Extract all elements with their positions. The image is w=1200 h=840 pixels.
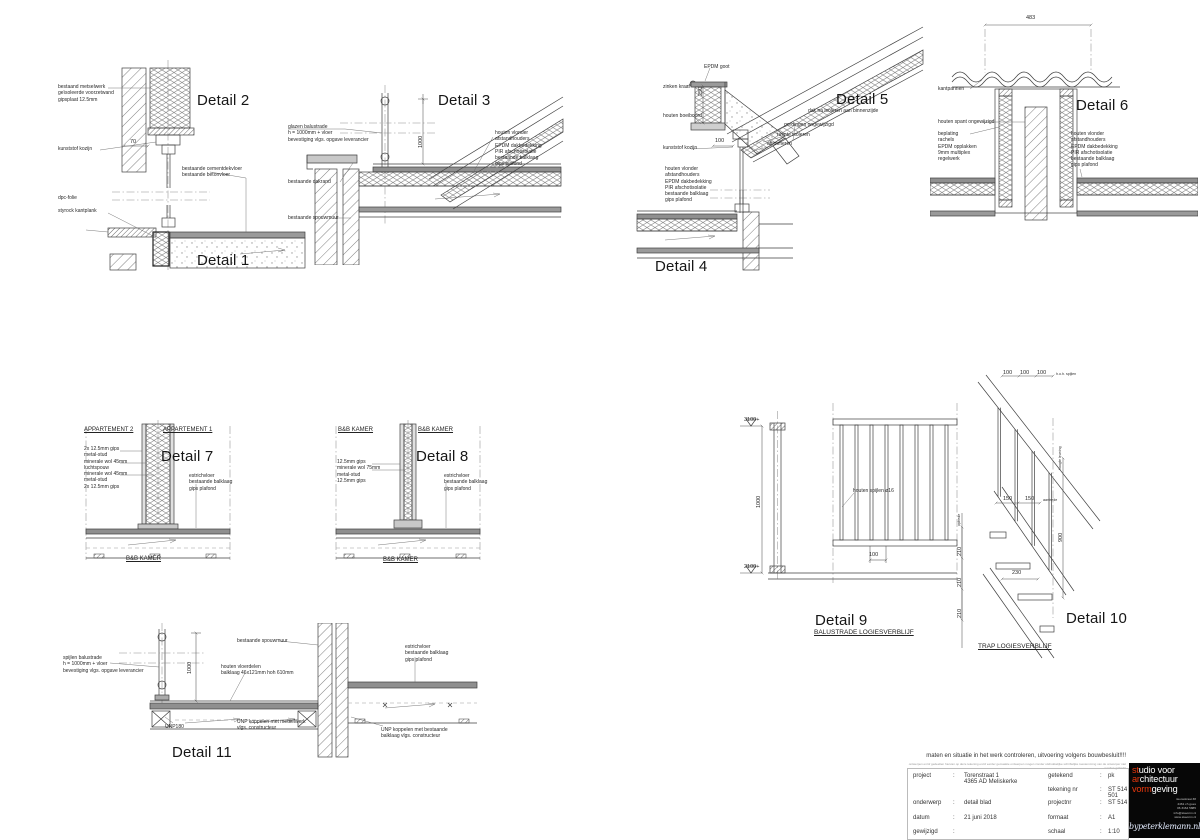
detail-4-title: Detail 4 [655,258,707,275]
field-separator: : [953,815,955,821]
field-value-tekening-nr: ST 514 501 [1108,787,1128,799]
dimension-1000: 1000 [187,662,193,674]
field-label: tekening nr [1048,787,1078,793]
dimension-483: 483 [1026,15,1035,21]
field-value-schaal: 1:10 [1108,829,1120,835]
detail-4-annotation: houten vlonder afstandhouders EPDM dakbe… [665,166,712,204]
detail-3-title: Detail 3 [438,92,490,109]
dimension-150: 150 [1025,496,1034,502]
field-value-getekend: pk [1108,773,1114,779]
detail-2-annotation: bestaand metselwerk geïsoleerde voorzetw… [58,84,114,103]
logo-address: nieuwstraat 38 4461 ch goes 06 3164 5885… [1129,797,1200,819]
dimension-210: 210 [957,578,963,587]
field-label: datum [913,815,930,821]
detail-6-annotation: kantpannen [938,86,964,92]
detail-5-annotation: aftimmeren [767,141,792,147]
detail-3-annotation: bestaande dakrand [288,179,331,185]
detail-7-title: Detail 7 [161,448,213,465]
detail-3-annotation: glazen balustrade h = 1000mm + vloer bev… [288,124,369,143]
field-label: project [913,773,931,779]
detail-7-room-header: APPARTEMENT 2 [84,427,133,433]
field-separator: : [1100,773,1102,779]
dimension-250: 250 [698,87,704,96]
detail-9-drawing [738,393,966,638]
detail-10-title: Detail 10 [1066,610,1127,627]
dimension-230: 230 [1012,570,1021,576]
dimension-1000: 1000 [418,136,424,148]
detail-11-annotation: houten vloerdelen balklaag 46x121mm hoh … [221,664,294,677]
field-label: formaat [1048,815,1068,821]
detail-5-annotation: ruimte isoleren [777,132,810,138]
detail-8-drawing [328,418,492,568]
detail-7-annotation: estrichvloer bestaande balklaag gips pla… [189,473,232,492]
field-separator: : [1100,829,1102,835]
field-separator: : [1100,800,1102,806]
dimension-100: 100 [1020,370,1029,376]
detail-8-annotation: 12.5mm gips minerale wol 75mm metal-stud… [337,459,380,484]
detail-8-room-footer: B&B KAMER [383,557,418,563]
field-separator: : [1100,815,1102,821]
detail-6-annotation: houten vlonder afstandhouders EPDM dakbe… [1071,131,1118,169]
dimension-210: 210 [957,547,963,556]
detail-2-title: Detail 2 [197,92,249,109]
studio-logo: studio voor architectuur vormgeving nieu… [1129,763,1200,838]
detail-1-annotation: dpc-folie [58,195,77,201]
detail-11-annotation: spijlen balustrade h = 1000mm + vloer be… [63,655,144,674]
detail-6-title: Detail 6 [1076,97,1128,114]
field-separator: : [953,773,955,779]
detail-6-annotation: beplating rachels EPDM opplakken 9mm mul… [938,131,977,162]
detail-5-annotation: houten boeiboord [663,113,702,119]
level-3100: 3100+ [744,417,759,423]
field-separator: : [953,829,955,835]
detail-11-annotation: UNP koppelen met metselwerk vlgs. constr… [237,719,306,732]
detail-8-room-header: B&B KAMER [338,427,373,433]
field-label: onderwerp [913,800,941,806]
dim-label-aantrede: aantrede [1043,498,1057,502]
dimension-100: 100 [1003,370,1012,376]
title-block: maten en situatie in het werk controlere… [905,750,1200,840]
detail-7-annotation: 2x 12.5mm gips metal-stud minerale wol 4… [84,446,127,490]
dim-label-hoh-spijlen: h.o.h. spijlen [1056,372,1076,376]
dimension-150: 150 [1003,496,1012,502]
detail-11-title: Detail 11 [172,744,232,761]
detail-11-annotation: bestaande spouwmuur [237,638,288,644]
detail-7-room-header: APPARTEMENT 1 [163,427,212,433]
logo-website: bypeterklemann.nl [1129,822,1200,831]
field-label: schaal [1048,829,1065,835]
field-separator: : [1100,787,1102,793]
detail-3-drawing [285,85,565,265]
detail-3-annotation: houten vlonder afstandhouders EPDM dakbe… [495,130,542,168]
detail-5-annotation: gordingen ongewijzigd [784,122,834,128]
field-value-projectnr: ST 514 [1108,800,1127,806]
dim-label-hoogte-leuning: hoogte leuning [1058,446,1062,470]
detail-2-annotation: kunststof kozijn [58,146,92,152]
field-label: getekend [1048,773,1073,779]
detail-5-title: Detail 5 [836,91,888,108]
detail-6-annotation: houten spant ongewijzigd [938,119,994,125]
detail-5-annotation: zinken kraal [663,84,690,90]
detail-11-annotation: UNP koppelen met bestaande balklaag vlgs… [381,727,448,740]
field-separator: : [953,800,955,806]
detail-5-annotation: dak na isoleren aan binnenzijde [808,108,878,114]
level-2100: 2100+ [744,564,759,570]
dimension-1000: 1000 [756,496,762,508]
dimension-100: 100 [869,552,878,558]
field-value-datum: 21 juni 2018 [964,815,997,821]
field-label: gewijzigd [913,829,938,835]
detail-11-annotation: UNP180 [165,724,184,730]
detail-1-annotation: styrock kantplank [58,208,97,214]
dimension-100: 100 [1037,370,1046,376]
detail-5-annotation: kunststof kozijn [663,145,697,151]
detail-8-annotation: estrichvloer bestaande balklaag gips pla… [444,473,487,492]
dim-label-optrede: optrede [957,514,961,526]
dimension-900: 900 [1058,533,1064,542]
detail-5-annotation: EPDM goot [704,64,730,70]
field-value-onderwerp: detail blad [964,800,991,806]
detail-1-title: Detail 1 [197,252,249,269]
title-block-table: project : Torenstraat 1 4365 AD Melisker… [907,768,1129,840]
logo-line: vormgeving [1129,785,1200,794]
detail-1-annotation: bestaande cementdekvloer bestaande beton… [182,166,242,179]
dimension-70: 70 [130,139,136,145]
field-label: projectnr [1048,800,1071,806]
detail-10-subtitle: TRAP LOGIESVERBLIJF [978,643,1052,650]
detail-9-annotation: houten spijlen ø16 [853,488,894,494]
detail-9-subtitle: BALUSTRADE LOGIESVERBLIJF [814,629,914,636]
dimension-210: 210 [957,609,963,618]
detail-7-room-footer: B&B KAMER [126,556,161,562]
field-value-formaat: A1 [1108,815,1115,821]
detail-7-drawing [78,418,242,568]
field-value-project: Torenstraat 1 4365 AD Meliskerke [964,773,1017,785]
detail-9-title: Detail 9 [815,612,867,629]
detail-11-annotation: estrichvloer bestaande balklaag gips pla… [405,644,448,663]
detail-8-room-header: B&B KAMER [418,427,453,433]
construction-note: maten en situatie in het werk controlere… [905,753,1126,759]
detail-3-annotation: bestaande spouwmuur [288,215,339,221]
dimension-100: 100 [715,138,724,144]
detail-8-title: Detail 8 [416,448,468,465]
